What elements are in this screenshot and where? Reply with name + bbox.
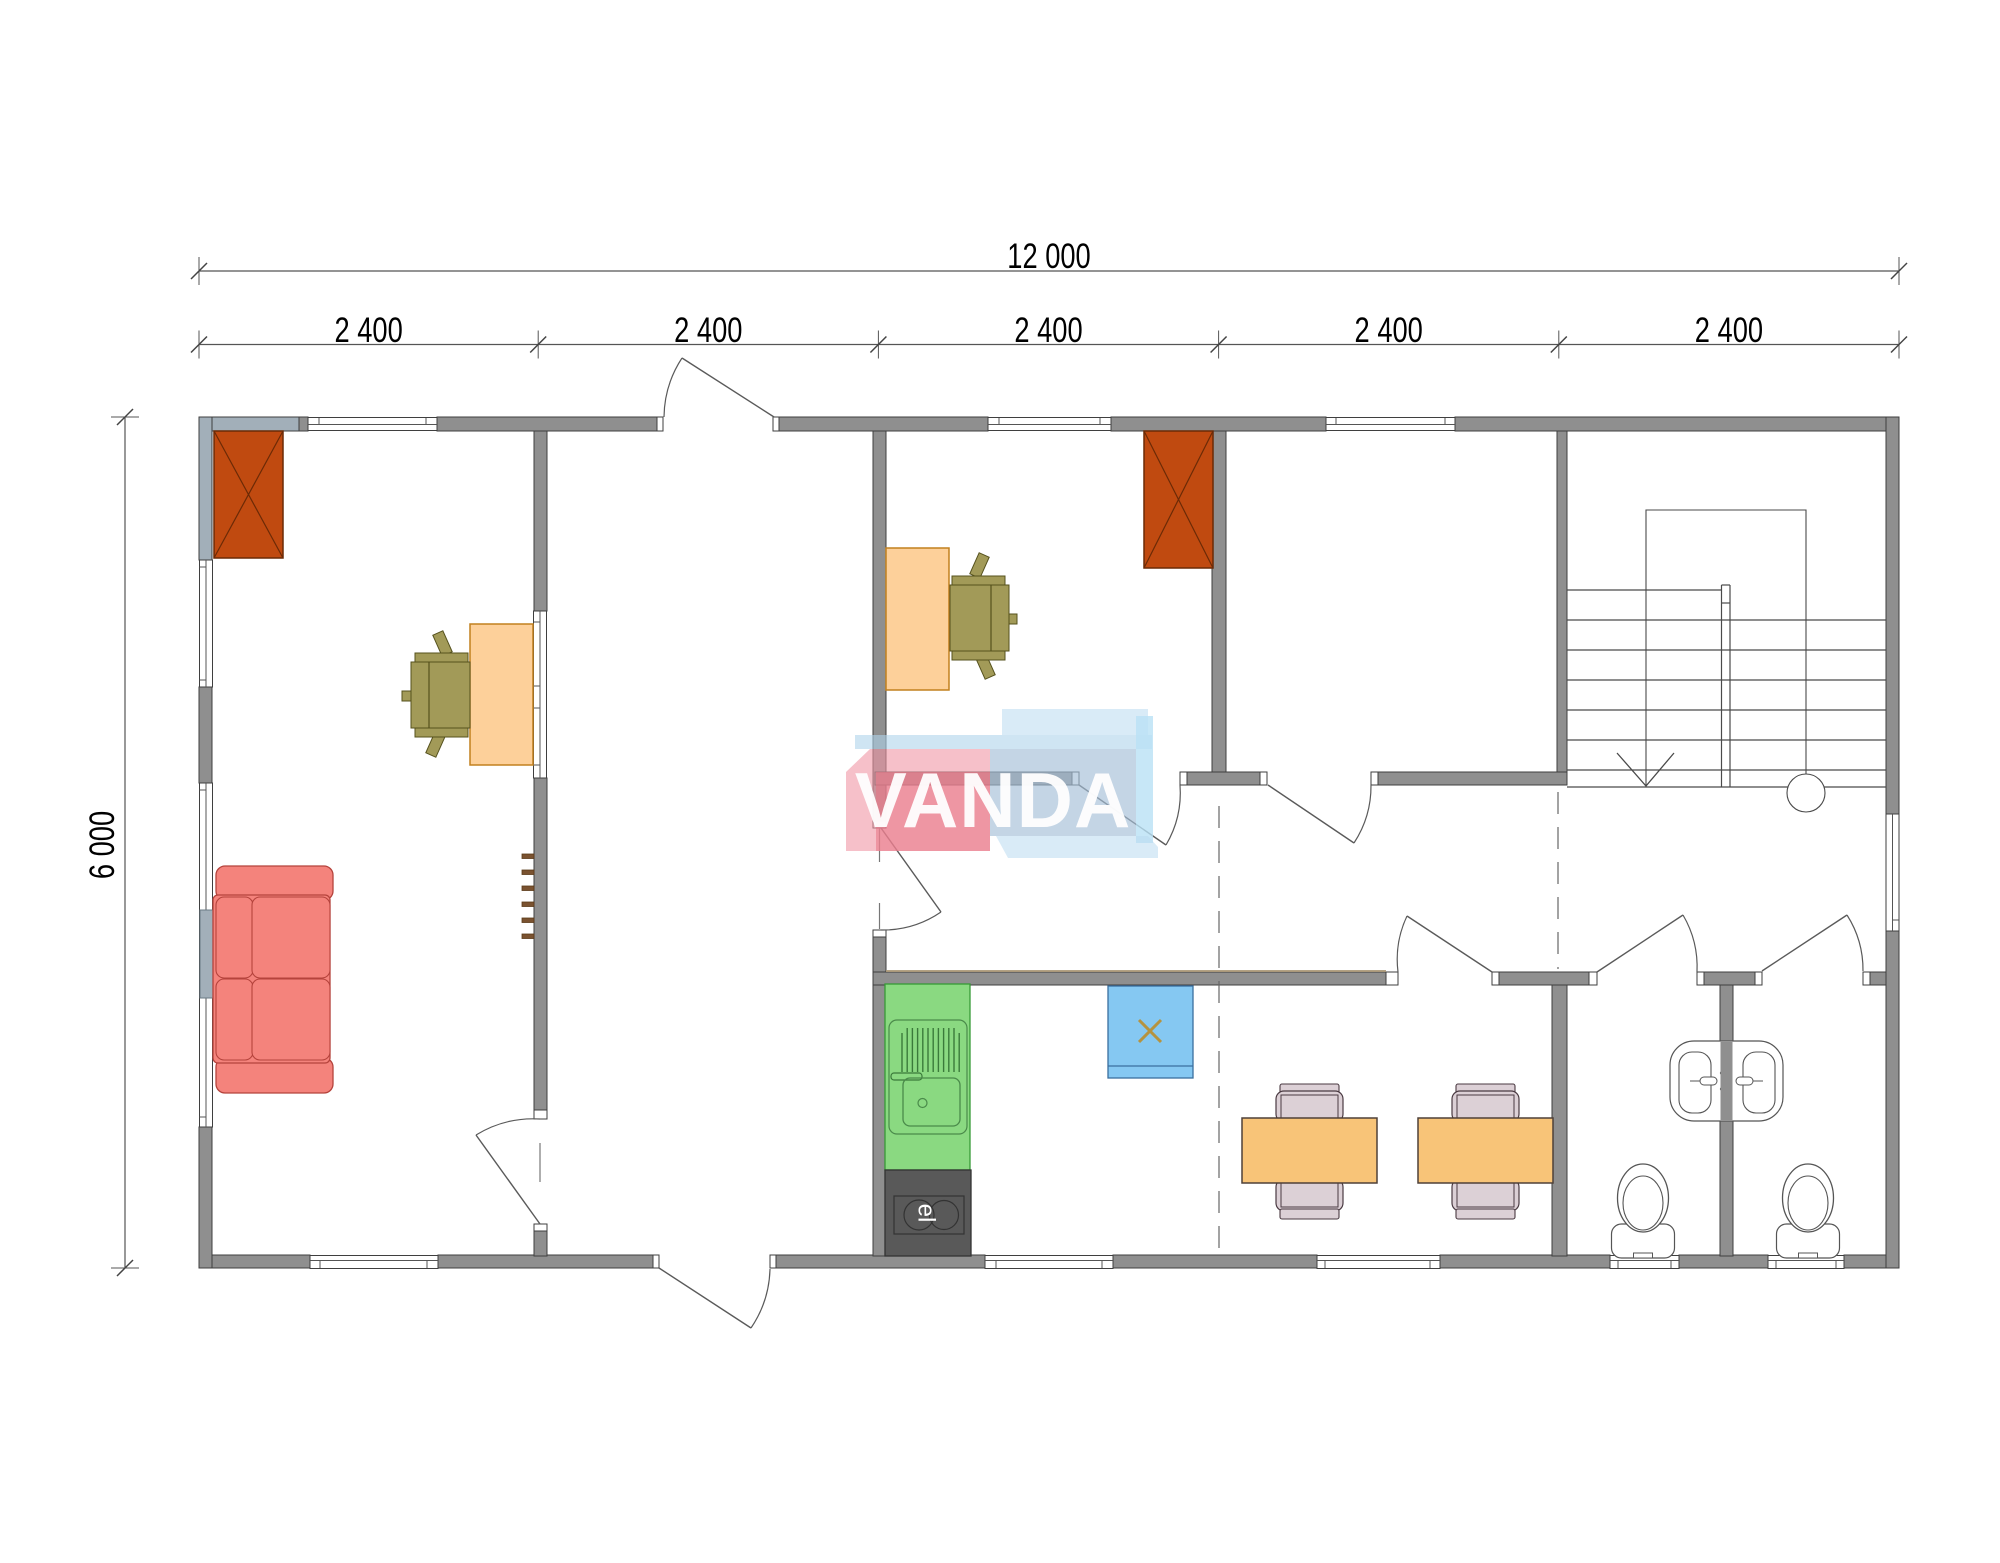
svg-text:el: el	[913, 1204, 940, 1223]
svg-text:2 400: 2 400	[334, 311, 402, 350]
svg-text:2 400: 2 400	[674, 311, 742, 350]
svg-text:12 000: 12 000	[1007, 237, 1090, 276]
svg-text:2 400: 2 400	[1014, 311, 1082, 350]
svg-text:2 400: 2 400	[1695, 311, 1763, 350]
svg-text:VANDA: VANDA	[855, 756, 1132, 844]
svg-text:6 000: 6 000	[83, 811, 122, 879]
svg-text:2 400: 2 400	[1355, 311, 1423, 350]
